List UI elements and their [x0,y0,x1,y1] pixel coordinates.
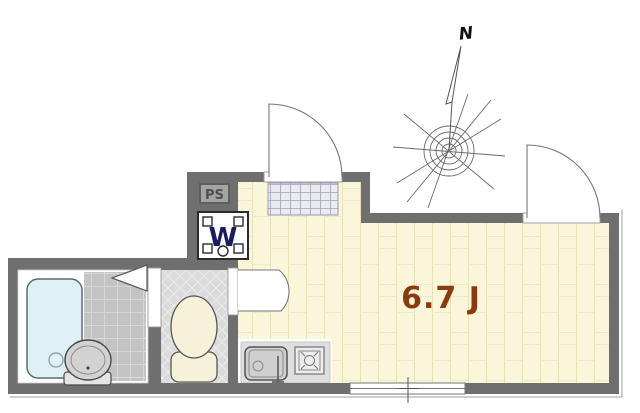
kitchen-counter [238,339,332,383]
stove-icon [295,347,324,374]
toilet-icon [171,296,217,382]
kitchen-sink-icon [245,347,287,382]
toilet-room [161,270,228,383]
wash-basin-icon [64,340,111,385]
room-area-label: 6.7 J [401,281,481,316]
floor-plan-page: PS W N 6.7 J [0,0,640,413]
bath-door-panel [148,268,161,327]
bathroom [18,265,148,385]
compass: N [393,23,505,208]
entrance-tile-area [268,183,338,215]
entrance-door-swing [269,104,342,177]
floor-plan: PS W N 6.7 J [0,0,640,413]
pipe-space-box: PS [200,184,229,203]
compass-rose [393,94,505,208]
washing-machine-box: W [198,212,248,259]
hall-door-opening [228,268,238,315]
pipe-space-label: PS [205,188,224,203]
balcony-door-swing [527,145,600,218]
compass-north-label: N [458,23,474,44]
washing-machine-label: W [209,223,238,253]
hall-door-swing [238,270,289,311]
